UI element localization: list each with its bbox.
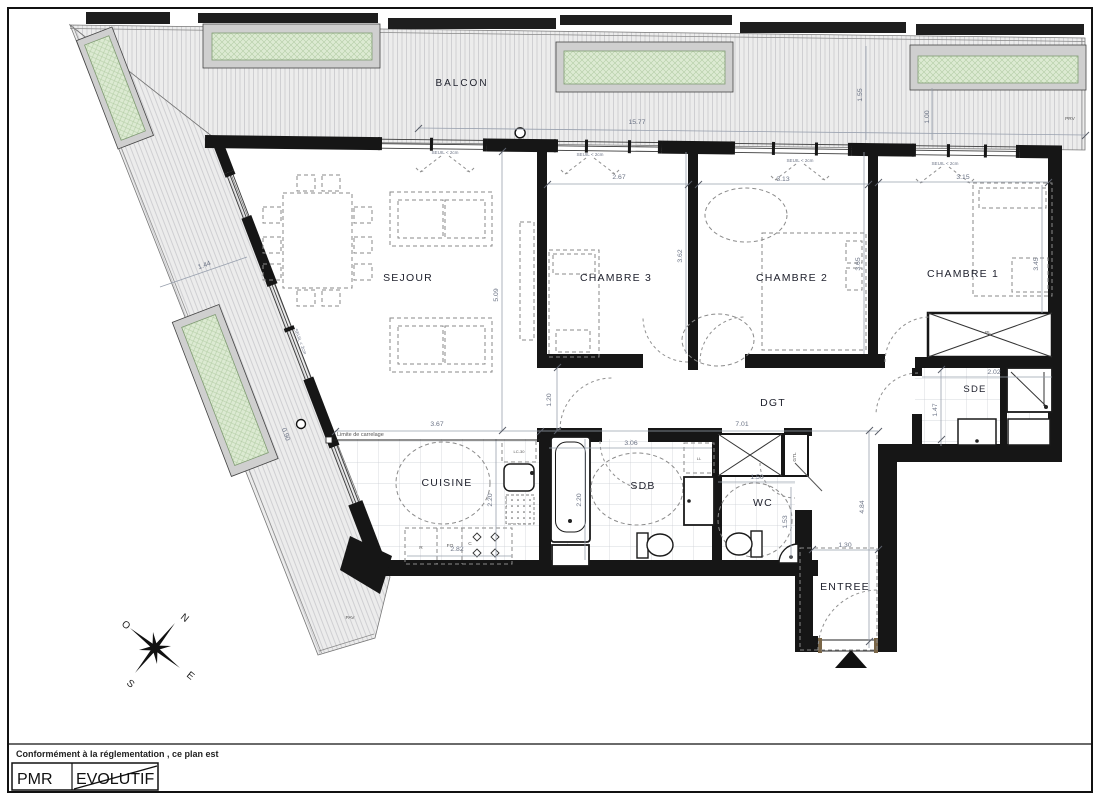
dishwasher-label: LC-30	[514, 449, 526, 454]
floor-plan-page: BALCON PRV PAV	[0, 0, 1118, 800]
sde-shower	[1007, 368, 1052, 412]
limite-label: Limite de carrelage	[337, 432, 384, 438]
dim-wc-w: 1.50	[750, 474, 763, 481]
label-cuisine: CUISINE	[422, 477, 473, 489]
footer-pmr: PMR	[17, 771, 53, 788]
dim-sde-w: 2.02	[987, 369, 1000, 376]
label-chambre2: CHAMBRE 2	[756, 272, 828, 284]
dim-entree-w: 1.30	[838, 542, 851, 549]
hob-label: C	[468, 541, 472, 547]
floor-plan-svg: BALCON PRV PAV	[0, 0, 1118, 800]
label-sde: SDE	[963, 384, 986, 395]
washing-machine-label: LL	[697, 456, 702, 461]
sdb-toilet	[637, 533, 673, 558]
label-wc: WC	[753, 497, 773, 509]
kitchen-sink	[504, 464, 534, 491]
dim-dgt: 7.01	[735, 421, 748, 428]
dim-ch1-w: 3.15	[956, 174, 969, 181]
closet-pl: PL	[928, 313, 1052, 357]
kitchen-dotted-zone	[506, 495, 534, 524]
dim-sdb-d: 2.20	[576, 493, 583, 506]
sde-cabinet	[1008, 419, 1050, 445]
wc-toilet	[726, 531, 762, 557]
seuil-4: SEUIL < 2cm	[931, 161, 958, 166]
label-sdb: SDB	[630, 480, 655, 492]
pav-label: PAV	[346, 615, 356, 621]
dim-ch3-w: 2.67	[612, 174, 625, 181]
dim-balcon-r2: 1.00	[924, 110, 931, 123]
dim-entree-l: 4.84	[859, 500, 866, 513]
footer-note: Conformément à la réglementation , ce pl…	[16, 749, 219, 759]
bath-cabinet	[552, 545, 589, 566]
dim-ch2-dr: 3.65	[855, 257, 862, 270]
dim-balcon-r1: 1.55	[857, 88, 864, 101]
closet-dgt	[718, 434, 782, 476]
dim-plan-travail: 2.82	[450, 546, 463, 553]
pl-label: PL	[985, 330, 991, 336]
prv-label: PRV	[1065, 116, 1076, 122]
dim-balcon: 15.77	[628, 119, 645, 126]
label-chambre1: CHAMBRE 1	[927, 268, 999, 280]
planter-top-left	[203, 24, 380, 68]
label-sejour: SEJOUR	[383, 272, 433, 284]
gtl-label: GTL	[792, 452, 798, 462]
seuil-1: SEUIL < 2cm	[431, 150, 458, 155]
seuil-3: SEUIL < 2cm	[786, 158, 813, 163]
diagonal-door-pivot	[297, 420, 306, 429]
planter-top-middle	[556, 42, 733, 92]
label-entree: ENTREE	[820, 581, 870, 593]
dim-porte-sejour: 1.20	[546, 393, 553, 406]
dim-wc-d: 1.53	[782, 515, 789, 528]
dim-ch2-dl: 3.62	[677, 249, 684, 262]
dim-sdb-w: 3.06	[624, 440, 637, 447]
seuil-2: SEUIL < 2cm	[576, 152, 603, 157]
dim-cuisine-w: 3.67	[430, 421, 443, 428]
label-dgt: DGT	[760, 397, 786, 409]
planter-top-right	[910, 45, 1086, 90]
dim-ch2-w: 3.13	[776, 176, 789, 183]
bathtub	[551, 437, 590, 542]
balcony-label: BALCON	[435, 78, 488, 89]
gtl-box: GTL	[784, 434, 808, 476]
label-chambre3: CHAMBRE 3	[580, 272, 652, 284]
dim-sejour-d: 5.09	[493, 288, 500, 301]
fridge-label: R	[419, 545, 423, 551]
dim-sde-d: 1.47	[932, 403, 939, 416]
dim-ch1-d: 3.45	[1033, 257, 1040, 270]
dim-cuisine-d: 2.20	[487, 493, 494, 506]
